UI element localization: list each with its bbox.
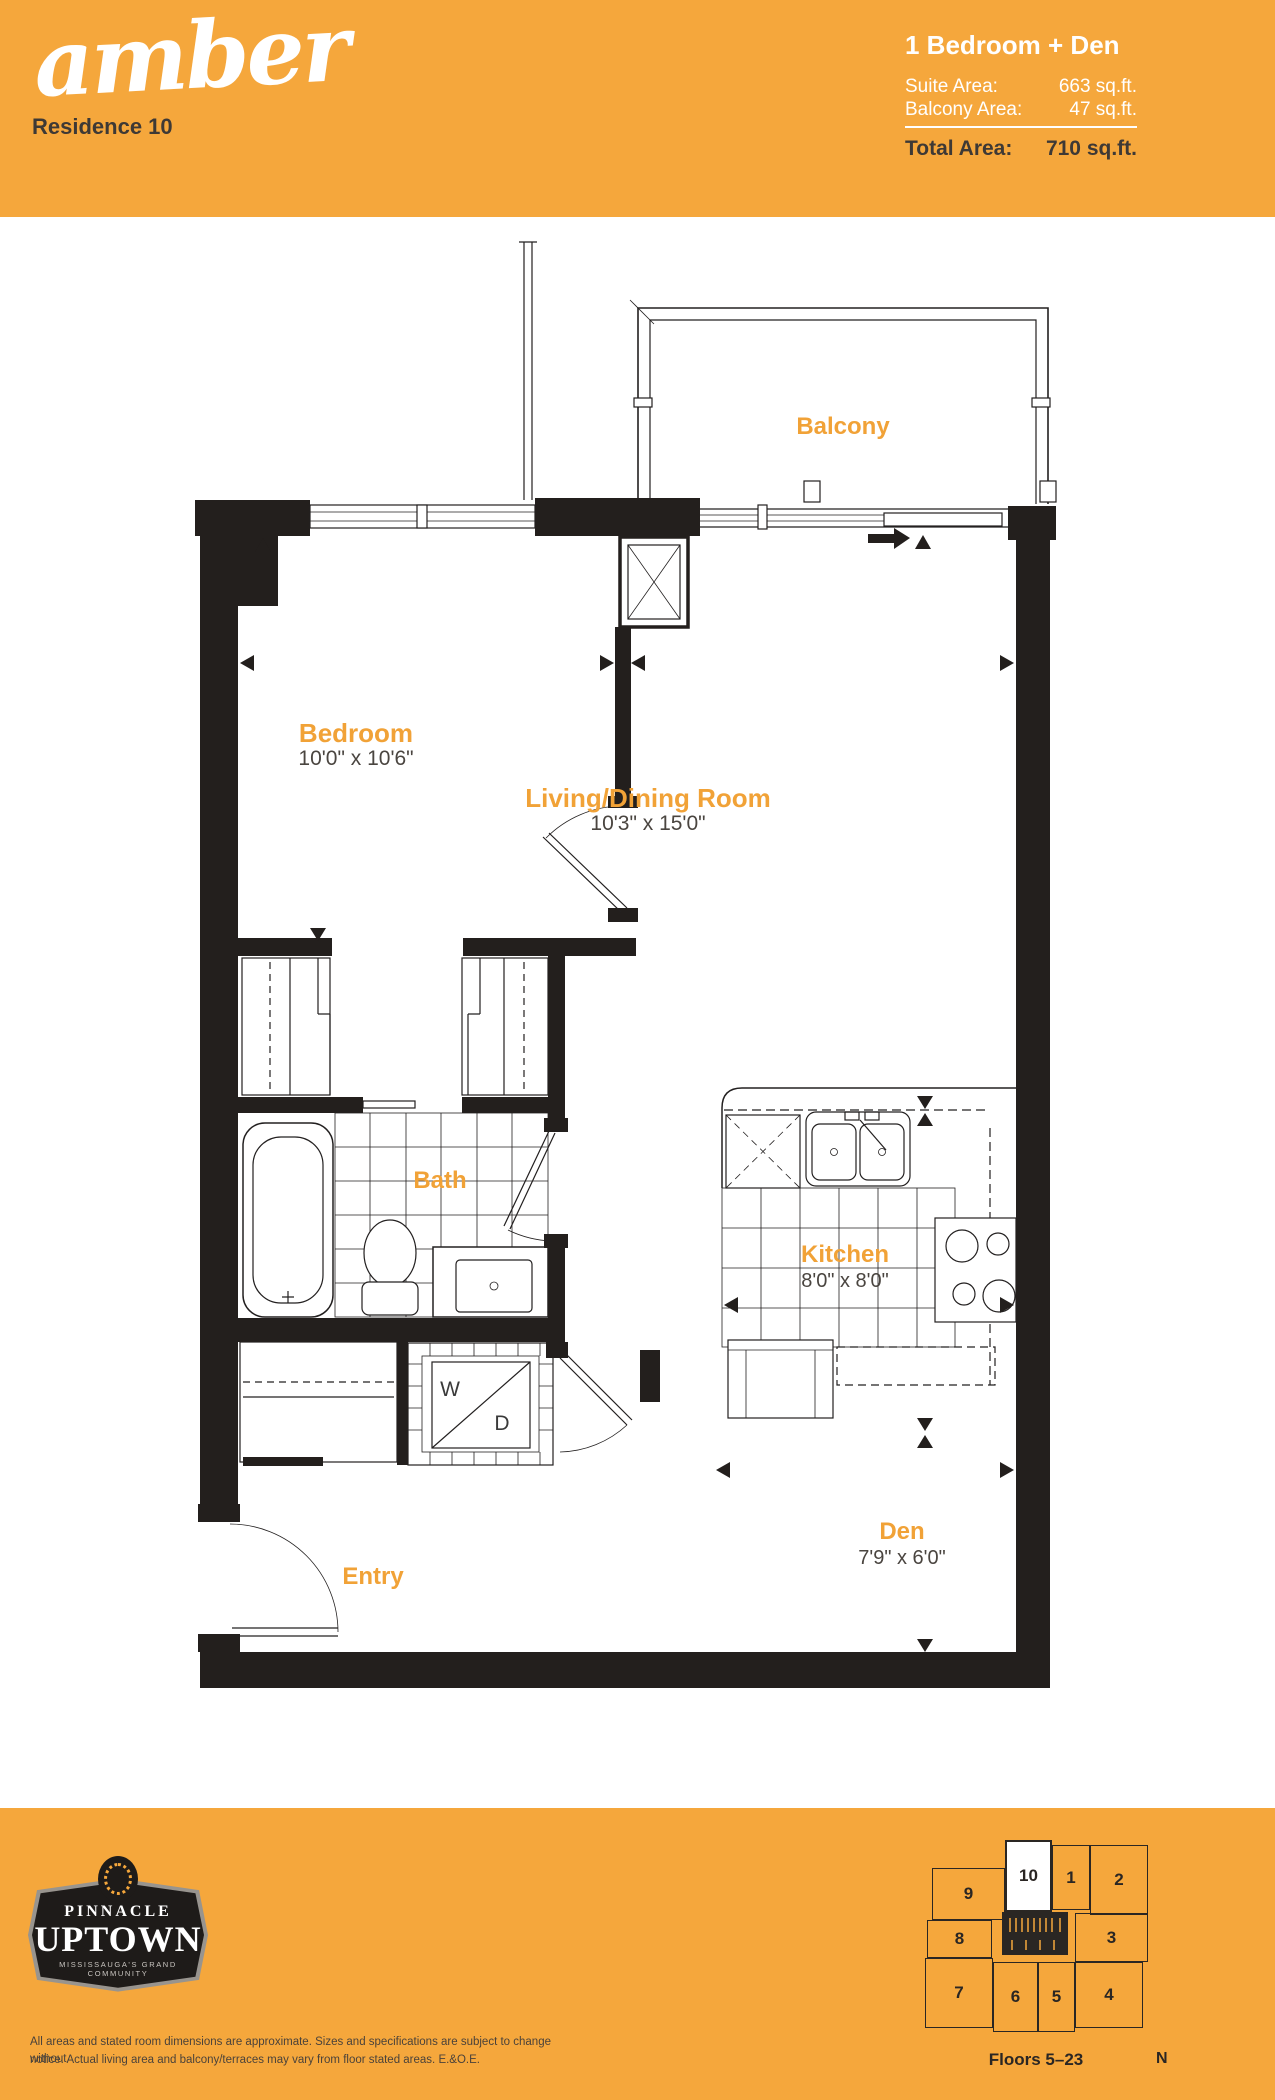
bathtub — [243, 1123, 333, 1317]
suite-area-value: 663 sq.ft. — [1059, 75, 1137, 98]
upper-cabinet-dashed — [837, 1347, 995, 1385]
keyplan-unit-4: 4 — [1075, 1962, 1143, 2028]
vanity-sink — [433, 1247, 548, 1317]
keyplan-unit-10-highlighted: 10 — [1005, 1840, 1052, 1912]
balcony-area-row: Balcony Area: 47 sq.ft. — [905, 98, 1137, 121]
entry-door — [230, 1524, 338, 1636]
balcony-area-label: Balcony Area: — [905, 98, 1022, 121]
base-cabinet — [728, 1340, 833, 1418]
floorplan-drawing — [0, 0, 1275, 2100]
bedroom-closet-left — [242, 958, 330, 1095]
room-label-balcony: Balcony — [796, 414, 889, 440]
header-band: amber Residence 10 1 Bedroom + Den Suite… — [0, 0, 1275, 217]
washer-dryer — [408, 1343, 553, 1465]
suite-summary: 1 Bedroom + Den Suite Area: 663 sq.ft. B… — [905, 30, 1137, 161]
keyplan-unit-5: 5 — [1038, 1962, 1075, 2032]
keyplan-elevator-core — [1002, 1912, 1068, 1955]
suite-area-label: Suite Area: — [905, 75, 998, 98]
balcony-railing — [630, 300, 1056, 504]
keyplan-unit-7: 7 — [925, 1958, 993, 2028]
floors-range-label: Floors 5–23 — [989, 2050, 1084, 2070]
pinnacle-uptown-logo: PINNACLE UPTOWN MISSISSAUGA'S GRAND COMM… — [28, 1856, 208, 1994]
floorplan-sheet: amber Residence 10 1 Bedroom + Den Suite… — [0, 0, 1275, 2100]
north-label: N — [1156, 2050, 1168, 2068]
room-label-kitchen: Kitchen 8'0" x 8'0" — [801, 1242, 889, 1294]
room-label-bedroom: Bedroom 10'0" x 10'6" — [298, 720, 413, 772]
keyplan-unit-2: 2 — [1090, 1845, 1148, 1915]
keyplan-unit-3: 3 — [1075, 1913, 1148, 1962]
balcony-area-value: 47 sq.ft. — [1069, 98, 1137, 121]
kitchen-sink — [806, 1112, 910, 1186]
entry-closet — [240, 1342, 397, 1466]
keyplan-unit-8: 8 — [927, 1920, 992, 1958]
logo-jewel-icon — [98, 1856, 138, 1902]
room-label-den: Den 7'9" x 6'0" — [858, 1519, 945, 1571]
washer-label: W — [440, 1378, 460, 1402]
total-area-label: Total Area: — [905, 137, 1012, 161]
keyplan-unit-1: 1 — [1052, 1845, 1090, 1910]
demising-wall-line — [519, 242, 537, 500]
bedroom-closet-right — [462, 958, 548, 1095]
bedroom-window — [310, 505, 535, 528]
toilet — [362, 1220, 418, 1315]
logo-jewel-ring — [104, 1863, 132, 1895]
keyplan-unit-6: 6 — [993, 1962, 1038, 2032]
logo-line2: UPTOWN — [34, 1921, 201, 1957]
residence-title: Residence 10 — [32, 114, 173, 140]
logo-tagline: MISSISSAUGA'S GRAND COMMUNITY — [32, 1960, 204, 1978]
brand-logo: amber — [31, 0, 350, 118]
room-label-living-dining: Living/Dining Room 10'3" x 15'0" — [525, 785, 771, 837]
total-area-value: 710 sq.ft. — [1046, 137, 1137, 161]
logo-line1: PINNACLE — [64, 1903, 172, 1921]
balcony-door-window — [700, 505, 1008, 529]
room-label-entry: Entry — [342, 1564, 403, 1590]
disclaimer-line-2: notice. Actual living area and balcony/t… — [30, 2052, 590, 2069]
total-area-row: Total Area: 710 sq.ft. — [905, 128, 1137, 161]
shaft-column — [620, 537, 688, 627]
fridge — [726, 1115, 800, 1188]
pocket-door — [363, 1101, 415, 1108]
laundry-door — [560, 1354, 632, 1452]
room-label-bath: Bath — [413, 1168, 466, 1194]
keyplan-unit-9: 9 — [932, 1868, 1005, 1920]
dryer-label: D — [494, 1412, 509, 1436]
suite-area-row: Suite Area: 663 sq.ft. — [905, 75, 1137, 98]
unit-type: 1 Bedroom + Den — [905, 30, 1137, 61]
